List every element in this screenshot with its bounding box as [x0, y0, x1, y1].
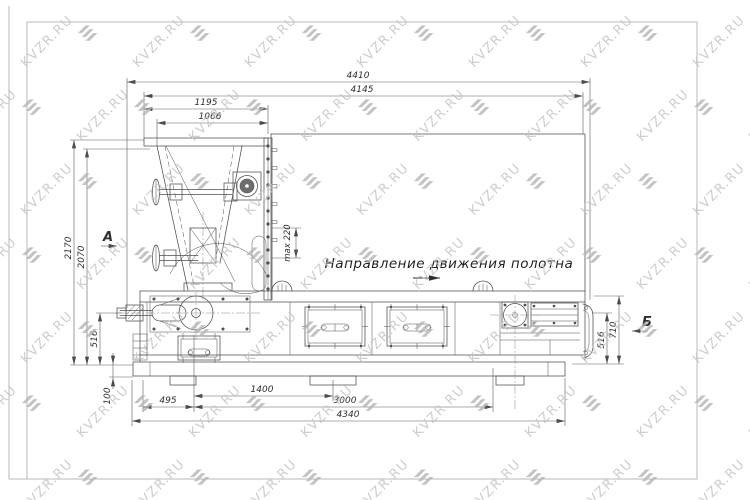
watermark-text: KVZR.RU: [354, 457, 412, 500]
watermark-text: KVZR.RU: [634, 87, 692, 145]
watermark-logo-icon: [358, 97, 378, 117]
watermark-text: KVZR.RU: [522, 87, 580, 145]
watermark-text: KVZR.RU: [746, 383, 750, 441]
watermark-logo-icon: [414, 23, 434, 43]
watermark-logo-icon: [22, 245, 42, 265]
watermark-logo-icon: [134, 97, 154, 117]
watermark-logo-icon: [78, 467, 98, 487]
watermark-logo-icon: [358, 393, 378, 413]
watermark-logo-icon: [190, 467, 210, 487]
watermark-logo-icon: [190, 23, 210, 43]
watermark-logo-icon: [78, 171, 98, 191]
watermark-text: KVZR.RU: [242, 457, 300, 500]
dim-max-gap: max 220: [283, 224, 293, 261]
watermark-logo-icon: [22, 393, 42, 413]
watermark-logo-icon: [414, 467, 434, 487]
watermark-text: KVZR.RU: [522, 383, 580, 441]
dim-bottom-4340: 4340: [337, 410, 360, 420]
watermark-logo-icon: [470, 97, 490, 117]
view-label-a: А: [102, 230, 113, 245]
watermark-text: KVZR.RU: [690, 309, 748, 367]
watermark-logo-icon: [134, 245, 154, 265]
dim-bottom-495: 495: [159, 396, 176, 406]
watermark-logo-icon: [246, 245, 266, 265]
watermark-logo-icon: [22, 97, 42, 117]
watermark-text: KVZR.RU: [578, 457, 636, 500]
watermark-logo-icon: [414, 319, 434, 339]
watermark-text: KVZR.RU: [466, 309, 524, 367]
watermark-logo-icon: [638, 467, 658, 487]
dim-left-2070: 2070: [77, 245, 87, 268]
watermark-text: KVZR.RU: [354, 309, 412, 367]
watermark-layer: KVZR.RUKVZR.RUKVZR.RUKVZR.RUKVZR.RUKVZR.…: [0, 0, 750, 500]
drawing-page: 4410 4145 1195 1066 2170 2070 516 100 49…: [0, 0, 750, 500]
watermark-text: KVZR.RU: [186, 383, 244, 441]
watermark-logo-icon: [78, 23, 98, 43]
dim-bottom-1400: 1400: [251, 385, 274, 395]
watermark-logo-icon: [246, 97, 266, 117]
watermark-text: KVZR.RU: [130, 457, 188, 500]
watermark-text: KVZR.RU: [186, 87, 244, 145]
watermark-text: KVZR.RU: [130, 309, 188, 367]
watermark-logo-icon: [526, 467, 546, 487]
watermark-text: KVZR.RU: [466, 457, 524, 500]
watermark-text: KVZR.RU: [578, 161, 636, 219]
watermark-logo-icon: [638, 23, 658, 43]
machine-drawing: [116, 134, 593, 410]
watermark-logo-icon: [526, 171, 546, 191]
watermark-text: KVZR.RU: [354, 161, 412, 219]
watermark-logo-icon: [470, 393, 490, 413]
watermark-text: KVZR.RU: [242, 13, 300, 71]
watermark-text: KVZR.RU: [0, 235, 20, 293]
watermark-text: KVZR.RU: [690, 13, 748, 71]
watermark-text: KVZR.RU: [466, 13, 524, 71]
watermark-logo-icon: [190, 171, 210, 191]
watermark-text: KVZR.RU: [466, 161, 524, 219]
watermark-text: KVZR.RU: [130, 13, 188, 71]
watermark-logo-icon: [638, 319, 658, 339]
watermark-text: KVZR.RU: [746, 235, 750, 293]
watermark-text: KVZR.RU: [690, 161, 748, 219]
watermark-text: KVZR.RU: [0, 383, 20, 441]
watermark-logo-icon: [302, 23, 322, 43]
watermark-text: KVZR.RU: [74, 87, 132, 145]
watermark-logo-icon: [582, 97, 602, 117]
watermark-logo-icon: [302, 467, 322, 487]
inspection-hatch-1: [302, 304, 368, 349]
watermark-text: KVZR.RU: [354, 13, 412, 71]
watermark-text: KVZR.RU: [242, 309, 300, 367]
watermark-logo-icon: [302, 171, 322, 191]
watermark-text: KVZR.RU: [746, 87, 750, 145]
watermark-text: KVZR.RU: [298, 87, 356, 145]
watermark-text: KVZR.RU: [0, 87, 20, 145]
watermark-text: KVZR.RU: [690, 457, 748, 500]
watermark-text: KVZR.RU: [634, 383, 692, 441]
dim-top-4145: 4145: [351, 85, 374, 95]
dim-top-4410: 4410: [347, 71, 370, 81]
watermark-text: KVZR.RU: [578, 13, 636, 71]
watermark-logo-icon: [526, 319, 546, 339]
watermark-logo-icon: [414, 171, 434, 191]
watermark-logo-icon: [526, 23, 546, 43]
watermark-logo-icon: [582, 393, 602, 413]
watermark-text: KVZR.RU: [410, 383, 468, 441]
cad-drawing-canvas: 4410 4145 1195 1066 2170 2070 516 100 49…: [0, 0, 750, 500]
machine-base: [133, 362, 565, 385]
watermark-logo-icon: [134, 393, 154, 413]
watermark-text: KVZR.RU: [410, 87, 468, 145]
watermark-text: KVZR.RU: [634, 235, 692, 293]
watermark-text: KVZR.RU: [578, 309, 636, 367]
watermark-logo-icon: [638, 171, 658, 191]
dim-left-2170: 2170: [64, 236, 74, 259]
